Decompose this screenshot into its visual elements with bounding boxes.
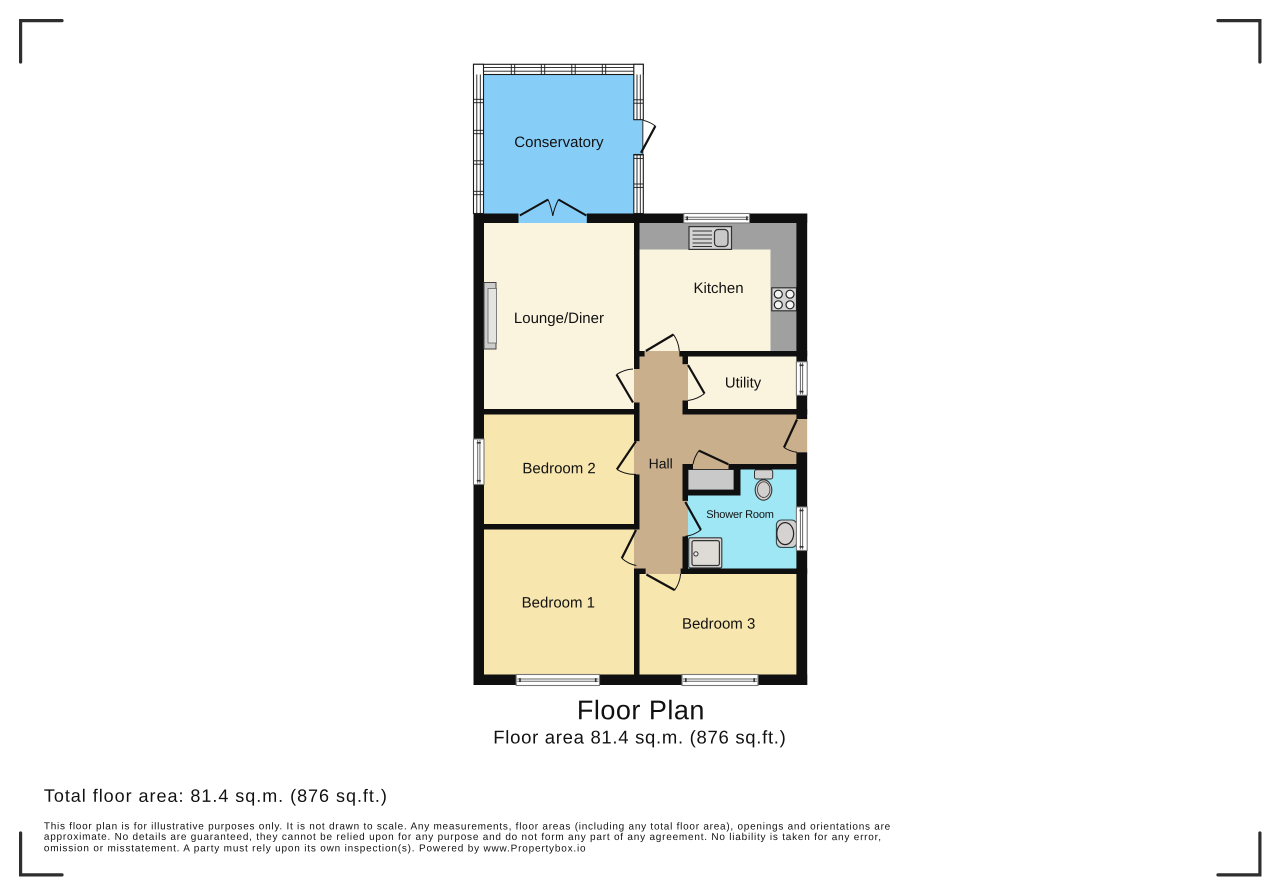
svg-text:Hall: Hall [649, 455, 673, 471]
svg-text:Total floor area: 81.4 sq.m. (: Total floor area: 81.4 sq.m. (876 sq.ft.… [44, 786, 388, 806]
svg-text:Conservatory: Conservatory [514, 134, 604, 151]
svg-text:Bedroom 1: Bedroom 1 [522, 594, 595, 611]
svg-text:Bedroom 3: Bedroom 3 [682, 616, 755, 633]
svg-text:approximate. No details are gu: approximate. No details are guaranteed, … [44, 832, 882, 843]
svg-text:omission or misstatement. A pa: omission or misstatement. A party must r… [44, 843, 587, 854]
svg-text:Utility: Utility [725, 376, 762, 392]
svg-text:Lounge/Diner: Lounge/Diner [514, 310, 604, 327]
svg-text:Floor Plan: Floor Plan [577, 695, 705, 725]
svg-text:Shower Room: Shower Room [706, 509, 774, 521]
svg-text:Bedroom 2: Bedroom 2 [522, 460, 595, 477]
svg-text:Kitchen: Kitchen [694, 280, 744, 297]
svg-text:Floor area 81.4 sq.m. (876 sq.: Floor area 81.4 sq.m. (876 sq.ft.) [493, 726, 786, 747]
